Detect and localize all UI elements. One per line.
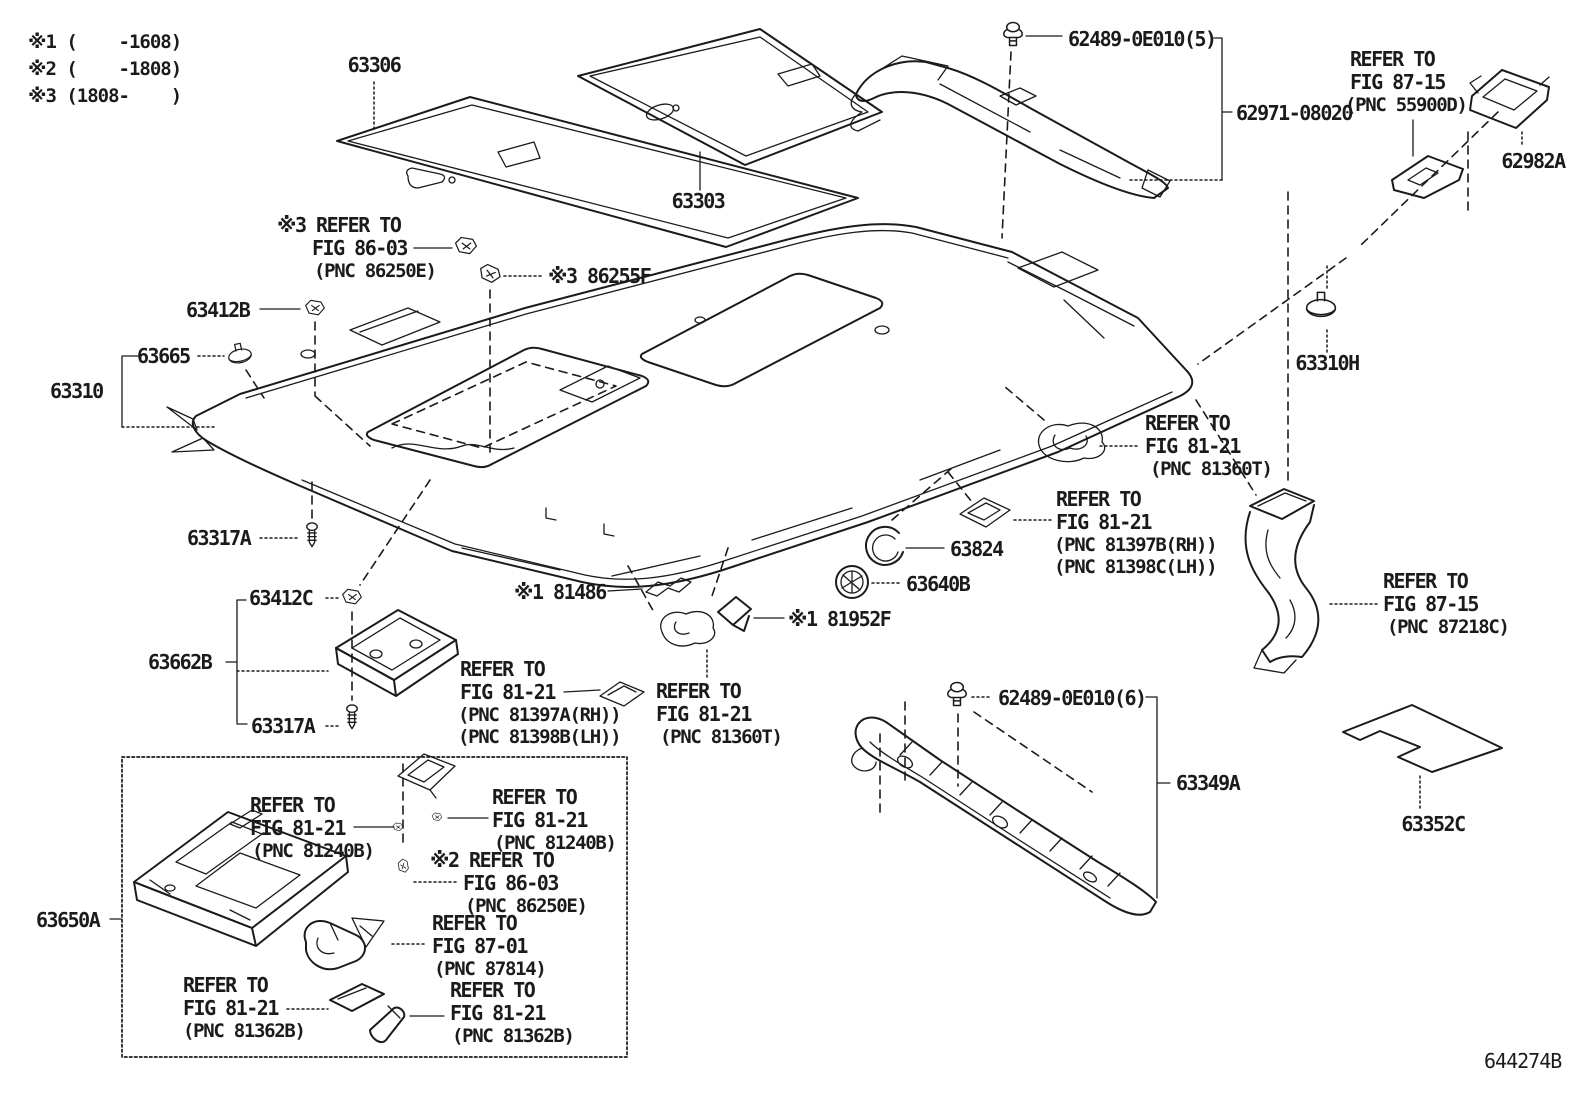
part-81397A-81398B [600,682,644,706]
ref-line: FIG 81-21 [183,996,279,1020]
label-63824: 63824 [950,537,1004,561]
ref-line: FIG 86-03 [463,871,558,895]
ref-line: FIG 81-21 [1145,434,1241,458]
ref-fig87-15-top: REFER TO FIG 87-15 (PNC 55900D) [1345,47,1467,116]
ref-line: (PNC 81360T) [660,726,782,748]
ref-line: (PNC 81360T) [1150,458,1272,480]
ref-line: (PNC 81362B) [452,1025,574,1047]
ref-fig81-21-box-right: REFER TO FIG 81-21 (PNC 81240B) [492,785,616,854]
note-2: ※2 ( -1808) [28,58,181,80]
ref-line: FIG 81-21 [1056,510,1152,534]
label-63662B: 63662B [148,650,213,674]
grommet-63665-icon [226,342,252,365]
label-86255F: ※3 86255F [548,264,651,288]
clip-63412B-icon [306,300,325,314]
ref-line: REFER TO [250,793,336,817]
ref-line: REFER TO [450,978,536,1002]
part-55900D [1392,156,1463,198]
bracket-62982A [1470,70,1549,128]
roof-brace-62971 [851,56,1170,198]
label-63310: 63310 [50,379,103,403]
rear-duct-87218C [1245,489,1318,673]
ref-line: (PNC 81398B(LH)) [458,726,620,748]
label-62982A: 62982A [1501,149,1566,173]
ref-line: (PNC 81398C(LH)) [1054,556,1216,578]
screw-63317A-lower-icon [347,705,358,729]
clip-62489-bottom-icon [948,683,966,706]
ref-line: FIG 81-21 [492,808,588,832]
ring-63824 [866,527,903,565]
ref-line: (PNC 55900D) [1345,94,1467,116]
ref-line: FIG 81-21 [460,680,556,704]
ref-line: (PNC 81397A(RH)) [458,704,620,726]
ref-fig87-15-duct: REFER TO FIG 87-15 (PNC 87218C) [1383,569,1509,638]
clip-81240B-right-icon [432,813,442,821]
label-81486: ※1 81486 [514,580,606,604]
diagram-code: 644274B [1484,1049,1562,1073]
clip-86255F-icon [478,263,502,284]
note-1: ※1 ( -1608) [28,31,181,53]
ref-line: REFER TO [1056,487,1142,511]
part-81360T-mid [661,612,715,646]
ref-line: REFER TO [432,911,518,935]
ref-line: (PNC 81362B) [183,1020,305,1042]
ref-fig81-21-right-lower: REFER TO FIG 81-21 (PNC 81397B(RH)) (PNC… [1054,487,1216,578]
ref-line: ※2 REFER TO [430,848,555,872]
bracket-81240B [398,754,455,798]
label-62489-0E010-6: 62489-0E010(6) [998,686,1146,710]
label-63665: 63665 [137,344,190,368]
disc-63640B [836,566,868,598]
clip-62489-top-icon [1004,23,1022,46]
label-63310H: 63310H [1295,351,1359,375]
ref-fig81-21-box-bl: REFER TO FIG 81-21 (PNC 81362B) [183,973,305,1042]
ref-line: FIG 81-21 [250,816,346,840]
label-63352C: 63352C [1401,812,1465,836]
ref-line: ※3 REFER TO [277,213,402,237]
trim-81362B-left [330,984,384,1011]
ref-line: FIG 87-15 [1383,592,1478,616]
ref-line: FIG 81-21 [450,1001,546,1025]
label-63650A: 63650A [36,908,101,932]
ref-line: (PNC 81240B) [252,840,374,862]
label-62971-08020: 62971-08020 [1236,101,1352,125]
rear-trim-63349A [852,718,1156,915]
silencer-pad-63352C [1343,705,1502,772]
label-63412C: 63412C [249,586,313,610]
ref-fig81-21-box-br: REFER TO FIG 81-21 (PNC 81362B) [450,978,574,1047]
ref-line: (PNC 81397B(RH)) [1054,534,1216,556]
ref-fig81-21-right-upper: REFER TO FIG 81-21 (PNC 81360T) [1145,411,1272,480]
ref-line: (PNC 87218C) [1387,616,1509,638]
screw-63317A-upper-icon [307,523,318,547]
grommet-63310H-icon [1307,292,1336,316]
parts-diagram-page: ※1 ( -1608) ※2 ( -1808) ※3 (1808- ) 6330… [0,0,1592,1099]
ref-line: REFER TO [656,679,742,703]
leader-lines [110,36,1522,1016]
label-62489-0E010-5: 62489-0E010(5) [1068,27,1216,51]
ref-line: FIG 81-21 [656,702,752,726]
ref-line: (PNC 86250E) [314,260,436,282]
ref-line: FIG 87-01 [432,934,528,958]
ref-line: (PNC 87814) [434,958,546,980]
ref-fig86-03-top: ※3 REFER TO FIG 86-03 (PNC 86250E) [277,213,436,282]
label-63640B: 63640B [906,572,971,596]
ref-fig81-21-mid-left: REFER TO FIG 81-21 (PNC 81397A(RH)) (PNC… [458,657,620,748]
roof-headlining-parts-diagram: ※1 ( -1608) ※2 ( -1808) ※3 (1808- ) 6330… [0,0,1592,1099]
label-63317A-upper: 63317A [187,526,252,550]
clip-86250E-top-icon [456,237,477,253]
label-63349A: 63349A [1176,771,1241,795]
ref-fig87-01-box: REFER TO FIG 87-01 (PNC 87814) [432,911,546,980]
ref-fig81-21-mid-right: REFER TO FIG 81-21 (PNC 81360T) [656,679,782,748]
trim-81362B-right [370,1006,404,1042]
label-63412B: 63412B [186,298,251,322]
label-63317A-lower: 63317A [251,714,316,738]
ref-line: REFER TO [183,973,269,997]
ref-line: REFER TO [460,657,546,681]
ref-line: FIG 87-15 [1350,70,1445,94]
ref-line: REFER TO [492,785,578,809]
label-81952F: ※1 81952F [788,607,891,631]
ref-line: FIG 86-03 [312,236,407,260]
part-81952F [718,597,751,631]
overhead-console-63662B [336,610,458,696]
visor-holder-87814 [305,918,384,969]
clip-86250E-box-icon [396,858,410,874]
part-81397B-81398C [960,498,1010,527]
sunshade-front-63306 [337,97,858,247]
clip-63412C-icon [343,589,362,603]
ref-line: REFER TO [1383,569,1469,593]
label-63303: 63303 [672,189,725,213]
label-63306: 63306 [348,53,401,77]
sunshade-rear-63303 [578,29,882,165]
ref-line: REFER TO [1145,411,1231,435]
ref-line: REFER TO [1350,47,1436,71]
text-labels: ※1 ( -1608) ※2 ( -1808) ※3 (1808- ) 6330… [28,27,1566,1073]
note-3: ※3 (1808- ) [28,85,181,107]
